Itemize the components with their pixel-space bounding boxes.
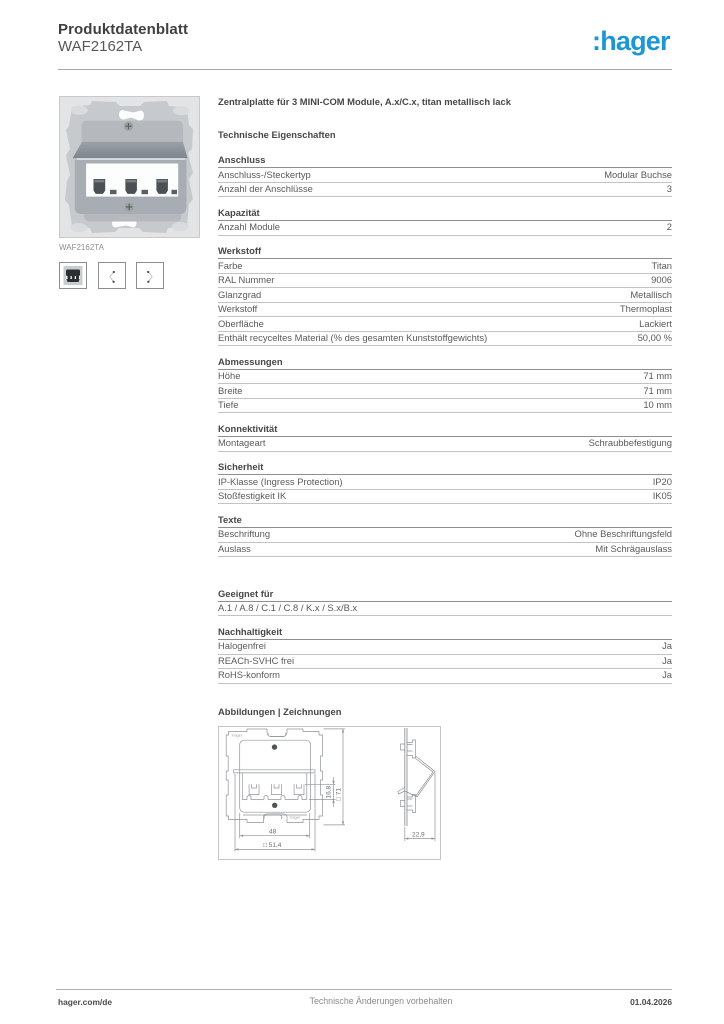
svg-text:□ 71: □ 71	[335, 788, 342, 801]
svg-text::hager: :hager	[231, 733, 243, 738]
svg-text:16,8: 16,8	[325, 785, 332, 798]
svg-text:□ 51,4: □ 51,4	[263, 842, 282, 849]
svg-text:48: 48	[269, 829, 277, 836]
svg-text:22,9: 22,9	[412, 831, 425, 838]
